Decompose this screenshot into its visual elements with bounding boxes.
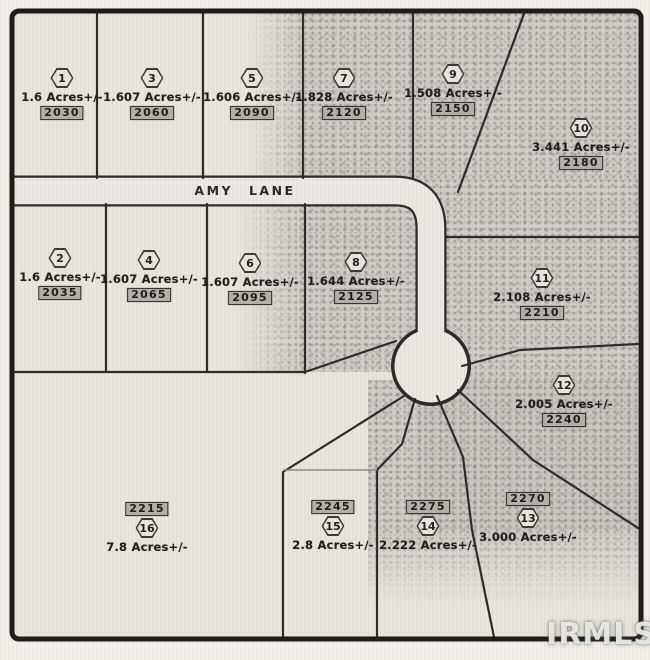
lot-number-badge: 5 [240,68,263,88]
lot-number-badge: 13 [516,508,539,528]
lot-address: 2180 [559,156,602,170]
lot-number-badge: 10 [569,118,592,138]
lot-address: 2090 [230,106,273,120]
lot-number: 2 [56,253,64,264]
lot-label-13: 2270 13 3.000 Acres+/- [479,492,577,544]
lot-acreage: 3.441 Acres+/- [532,140,630,154]
lot-address: 2240 [542,413,585,427]
lot-label-12: 12 2.005 Acres+/- 2240 [515,375,613,427]
lot-address: 2095 [228,291,271,305]
lot-label-11: 11 2.108 Acres+/- 2210 [493,268,591,320]
lot-acreage: 1.606 Acres+/- [203,90,301,104]
lot-number-badge: 15 [321,516,344,536]
lot-label-1: 1 1.6 Acres+/- 2030 [21,68,102,120]
lot-number-badge: 8 [344,252,367,272]
lot-address: 2215 [125,502,168,516]
irmls-watermark: IRMLS [546,617,650,652]
lot-number: 12 [556,380,571,391]
lot-acreage: 3.000 Acres+/- [479,530,577,544]
lot-acreage: 2.8 Acres+/- [292,538,373,552]
lot-acreage: 1.607 Acres+/- [103,90,201,104]
lot-label-3: 3 1.607 Acres+/- 2060 [103,68,201,120]
lot-number-badge: 16 [135,518,158,538]
lot-acreage: 1.828 Acres+/- [295,90,393,104]
lot-label-9: 9 1.508 Acres+/- 2150 [404,64,502,116]
lot-acreage: 1.607 Acres+/- [201,275,299,289]
lot-address: 2065 [127,288,170,302]
lot-number-badge: 4 [137,250,160,270]
lot-address: 2275 [406,500,449,514]
lot-acreage: 2.222 Acres+/- [379,538,477,552]
lot-number: 4 [145,255,153,266]
lot-label-10: 10 3.441 Acres+/- 2180 [532,118,630,170]
lot-number: 11 [534,273,549,284]
lot-address: 2150 [431,102,474,116]
lot-number: 15 [325,521,340,532]
lot-label-5: 5 1.606 Acres+/- 2090 [203,68,301,120]
road-name-label: AMY LANE [194,183,295,198]
lot-acreage: 7.8 Acres+/- [106,540,187,554]
lot-acreage: 2.108 Acres+/- [493,290,591,304]
lot-number: 3 [148,73,156,84]
lot-address: 2060 [130,106,173,120]
lot-number-badge: 9 [441,64,464,84]
lot-number-badge: 1 [50,68,73,88]
lot-address: 2125 [334,290,377,304]
lot-number: 9 [449,69,457,80]
lot-number-badge: 6 [238,253,261,273]
lot-number: 6 [246,258,254,269]
lot-label-4: 4 1.607 Acres+/- 2065 [100,250,198,302]
lot-address: 2245 [311,500,354,514]
lot-label-8: 8 1.644 Acres+/- 2125 [307,252,405,304]
lot-label-16: 2215 16 7.8 Acres+/- [106,502,187,554]
lot-number-badge: 7 [332,68,355,88]
lot-address: 2035 [38,286,81,300]
lot-number-badge: 12 [552,375,575,395]
lot-number: 10 [573,123,588,134]
lot-acreage: 1.508 Acres+/- [404,86,502,100]
lot-number: 13 [520,513,535,524]
lot-number: 1 [58,73,66,84]
lot-label-7: 7 1.828 Acres+/- 2120 [295,68,393,120]
lot-acreage: 2.005 Acres+/- [515,397,613,411]
lot-number: 8 [352,257,360,268]
lot-acreage: 1.607 Acres+/- [100,272,198,286]
plat-map: AMY LANE 1 1.6 Acres+/- 2030 3 1.607 Acr… [0,0,650,660]
lot-label-15: 2245 15 2.8 Acres+/- [292,500,373,552]
lot-number: 16 [139,523,154,534]
lot-number: 7 [340,73,348,84]
lot-number-badge: 14 [416,516,439,536]
lot-acreage: 1.6 Acres+/- [19,270,100,284]
lot-address: 2210 [520,306,563,320]
lot-label-14: 2275 14 2.222 Acres+/- [379,500,477,552]
lot-number-badge: 11 [530,268,553,288]
lot-label-6: 6 1.607 Acres+/- 2095 [201,253,299,305]
lot-acreage: 1.6 Acres+/- [21,90,102,104]
lot-number: 5 [248,73,256,84]
lot-address: 2120 [322,106,365,120]
lot-address: 2030 [40,106,83,120]
lot-number: 14 [420,521,435,532]
lot-address: 2270 [506,492,549,506]
lot-number-badge: 2 [48,248,71,268]
lot-label-2: 2 1.6 Acres+/- 2035 [19,248,100,300]
lot-number-badge: 3 [140,68,163,88]
lot-acreage: 1.644 Acres+/- [307,274,405,288]
